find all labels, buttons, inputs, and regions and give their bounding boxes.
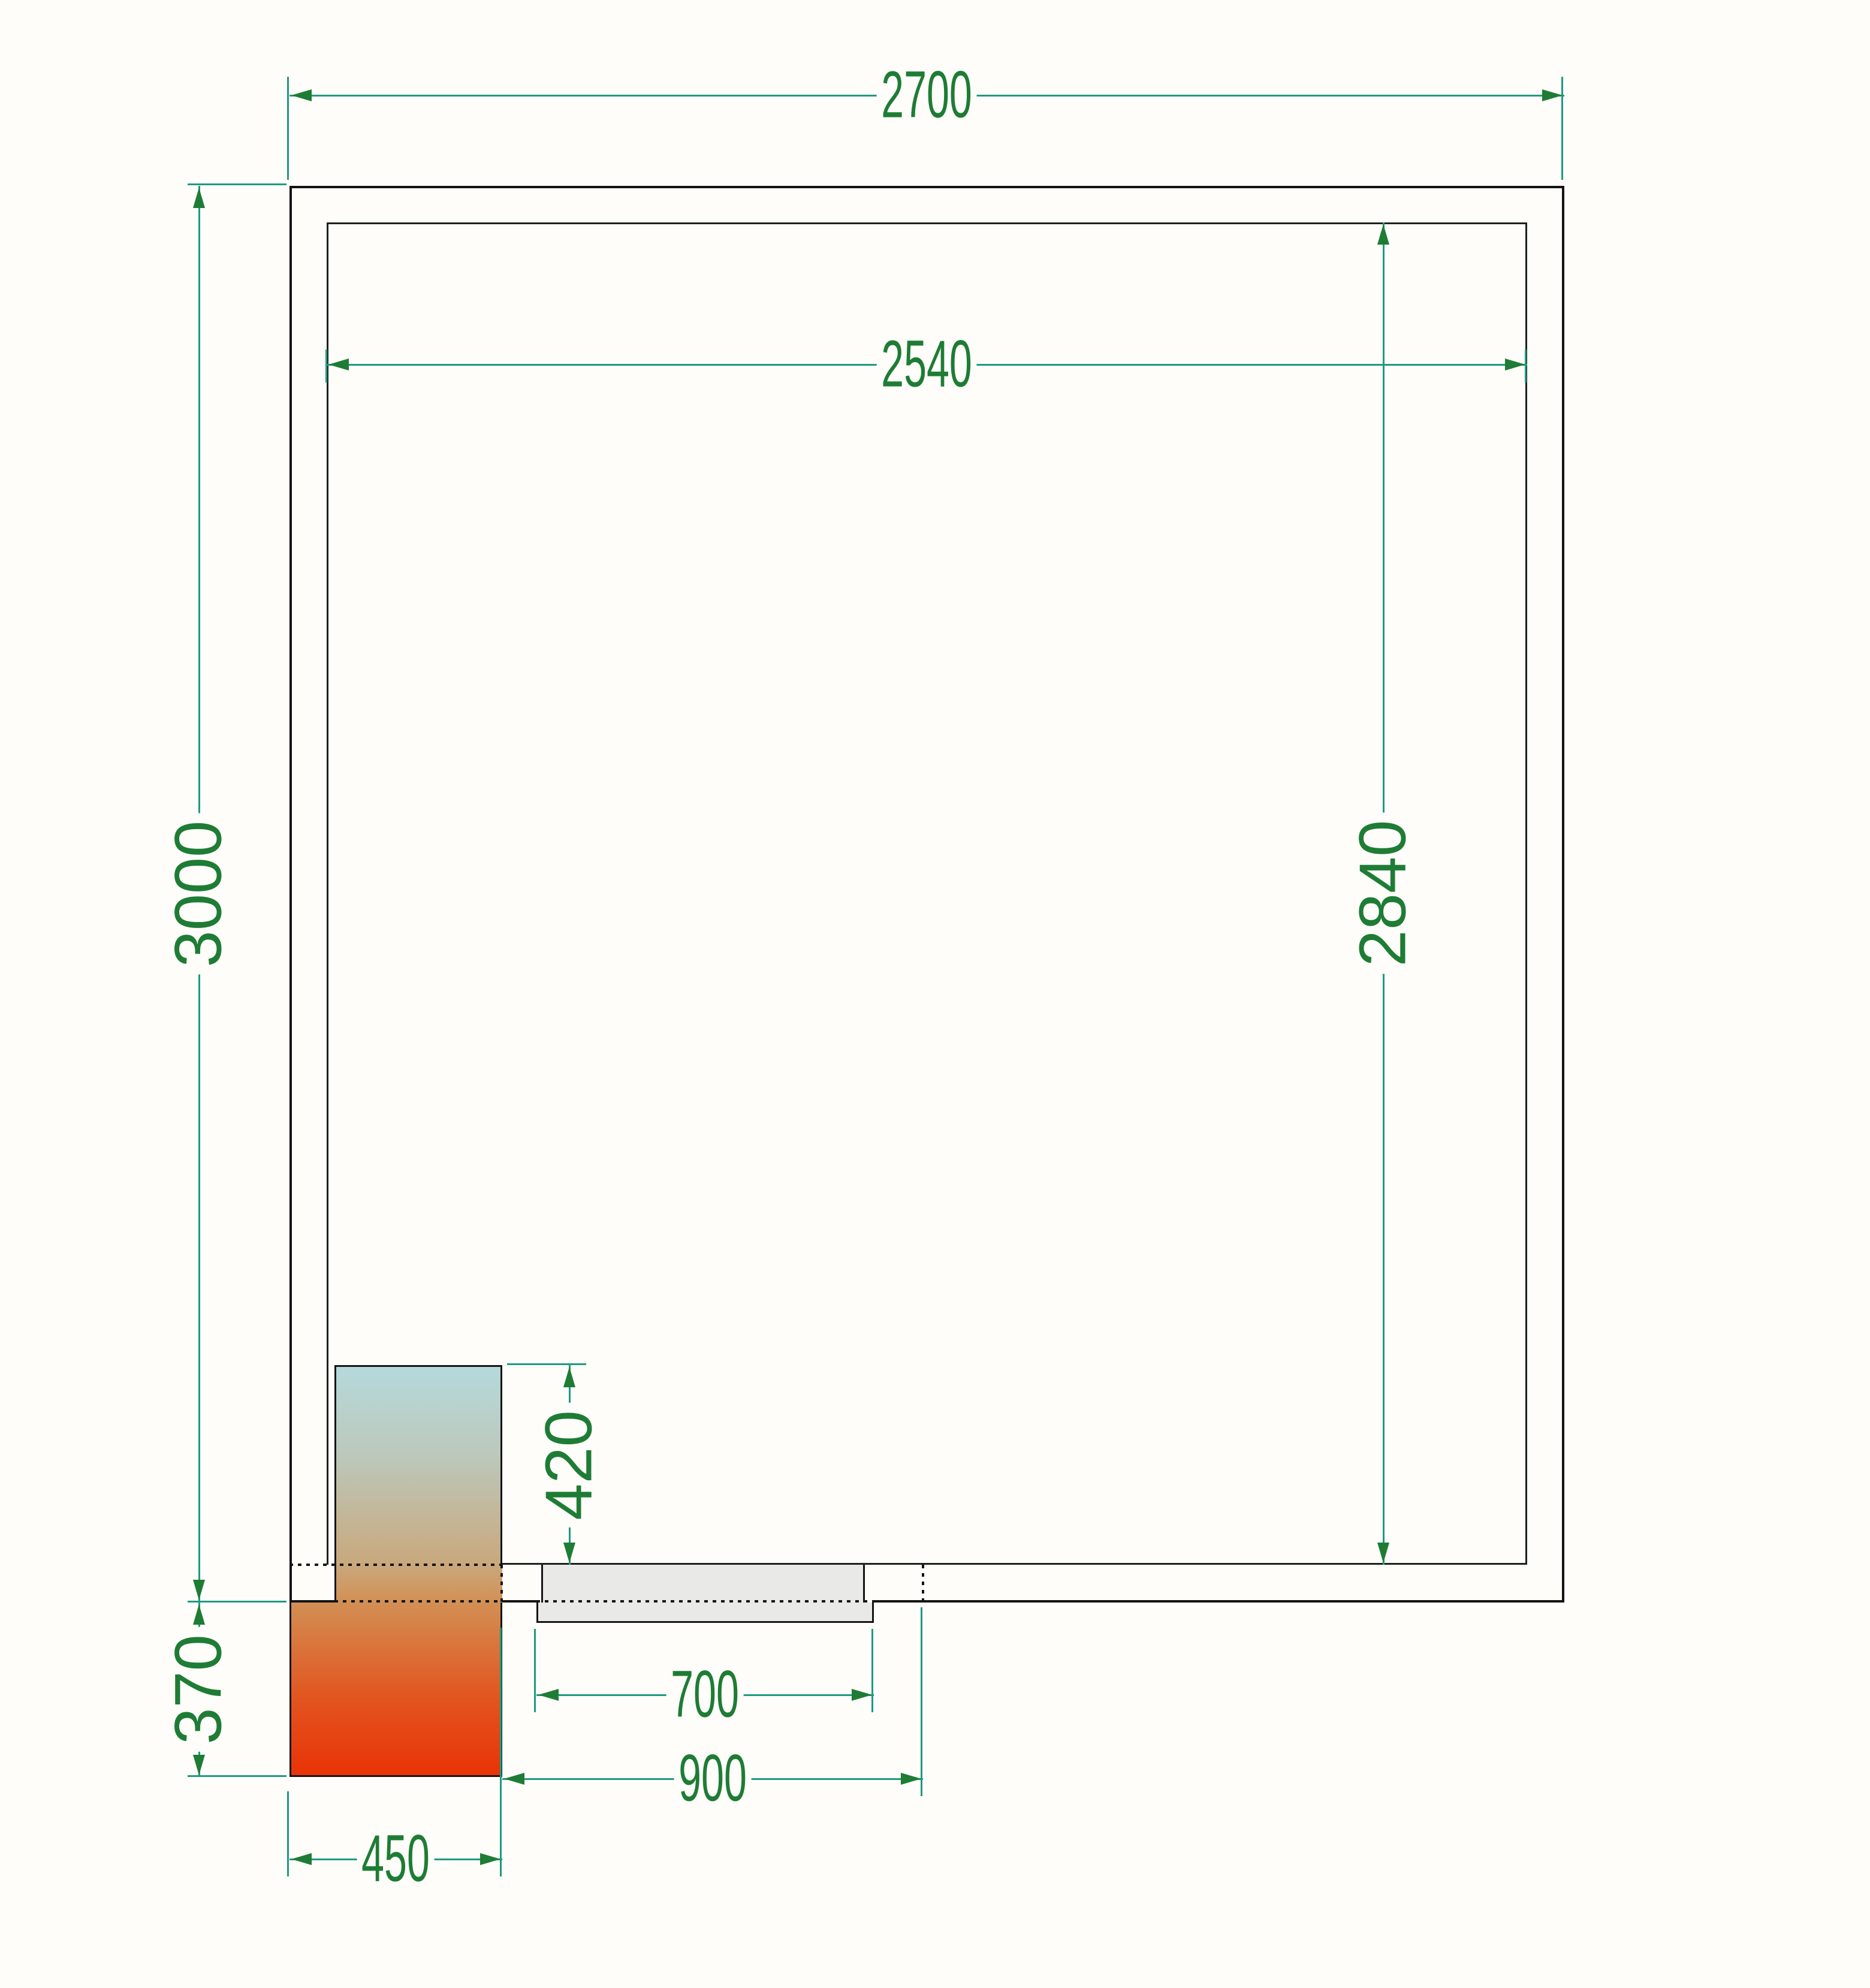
dim-unit-depth-arrow-bottom-icon bbox=[563, 1543, 575, 1563]
dim-unit-width-arrow-right-icon bbox=[480, 1853, 500, 1865]
hidden-edge-outer-wall-at-unit bbox=[334, 1600, 502, 1603]
dim-outer-height-arrow-bottom-icon bbox=[193, 1580, 205, 1600]
dim-outer-height-label: 3000 bbox=[164, 814, 235, 975]
hidden-edge-unit-right bbox=[500, 1565, 503, 1603]
cooling-unit-wall-section bbox=[334, 1565, 502, 1603]
dim-unit-depth-ext-top bbox=[507, 1363, 586, 1365]
dim-unit-depth-label: 420 bbox=[534, 1403, 605, 1528]
cooling-unit-inside-section bbox=[334, 1365, 502, 1565]
dim-inner-height-arrow-bottom-icon bbox=[1377, 1543, 1389, 1563]
dim-unit-width-arrow-left-icon bbox=[291, 1853, 312, 1865]
hidden-edge-inner-wall-at-unit bbox=[289, 1564, 502, 1566]
cooling-unit-outside-section bbox=[289, 1603, 502, 1777]
dim-outer-width-ext-left bbox=[287, 77, 289, 180]
dim-door-leaf-arrow-right-icon bbox=[852, 1689, 872, 1701]
dim-unit-depth-arrow-top-icon bbox=[563, 1367, 575, 1387]
dim-outer-height-ext-top bbox=[188, 183, 286, 185]
floor-plan-drawing: 2700 2540 3000 2840 420 370 700 900 450 bbox=[0, 0, 1870, 1988]
dim-door-leaf-label: 700 bbox=[666, 1659, 744, 1731]
dim-door-clearance-arrow-right-icon bbox=[901, 1773, 921, 1785]
dim-outer-width-arrow-right-icon bbox=[1542, 89, 1563, 101]
dim-door-clearance-label: 900 bbox=[674, 1743, 752, 1815]
dim-outer-height-arrow-top-icon bbox=[193, 188, 205, 208]
dim-unit-width-label: 450 bbox=[357, 1824, 435, 1895]
door-leaf bbox=[536, 1603, 874, 1623]
outer-wall-bottom-line-mid bbox=[502, 1600, 536, 1603]
hidden-edge-door-frame-right bbox=[922, 1565, 924, 1603]
dim-inner-height-label: 2840 bbox=[1348, 813, 1419, 974]
outer-wall-bottom-line-right bbox=[874, 1600, 1564, 1603]
dim-unit-outside-arrow-top-icon bbox=[193, 1604, 205, 1625]
dim-unit-outside-arrow-bottom-icon bbox=[193, 1755, 205, 1775]
dim-outer-height-ext-bottom bbox=[188, 1601, 286, 1603]
dim-outer-width-arrow-left-icon bbox=[291, 89, 312, 101]
dim-door-clearance-ext-right bbox=[921, 1607, 922, 1796]
dim-inner-width-arrow-left-icon bbox=[328, 359, 349, 371]
dim-door-leaf-arrow-left-icon bbox=[538, 1689, 559, 1701]
dim-door-clearance-ext-left bbox=[500, 1628, 502, 1876]
dim-unit-width-ext-left bbox=[287, 1791, 289, 1876]
dim-outer-width-label: 2700 bbox=[877, 60, 977, 131]
dim-inner-width-arrow-right-icon bbox=[1505, 359, 1525, 371]
dim-inner-width-label: 2540 bbox=[877, 329, 977, 400]
door-opening bbox=[541, 1565, 865, 1603]
dim-door-leaf-ext-left bbox=[534, 1629, 536, 1712]
dim-door-clearance-arrow-left-icon bbox=[504, 1773, 524, 1785]
dim-inner-height-arrow-top-icon bbox=[1377, 224, 1389, 245]
hidden-edge-outer-wall-at-door bbox=[536, 1600, 874, 1603]
dim-unit-outside-ext-bottom bbox=[188, 1775, 286, 1777]
dim-inner-width-ext-left bbox=[325, 350, 327, 382]
dim-unit-outside-label: 370 bbox=[164, 1627, 235, 1752]
